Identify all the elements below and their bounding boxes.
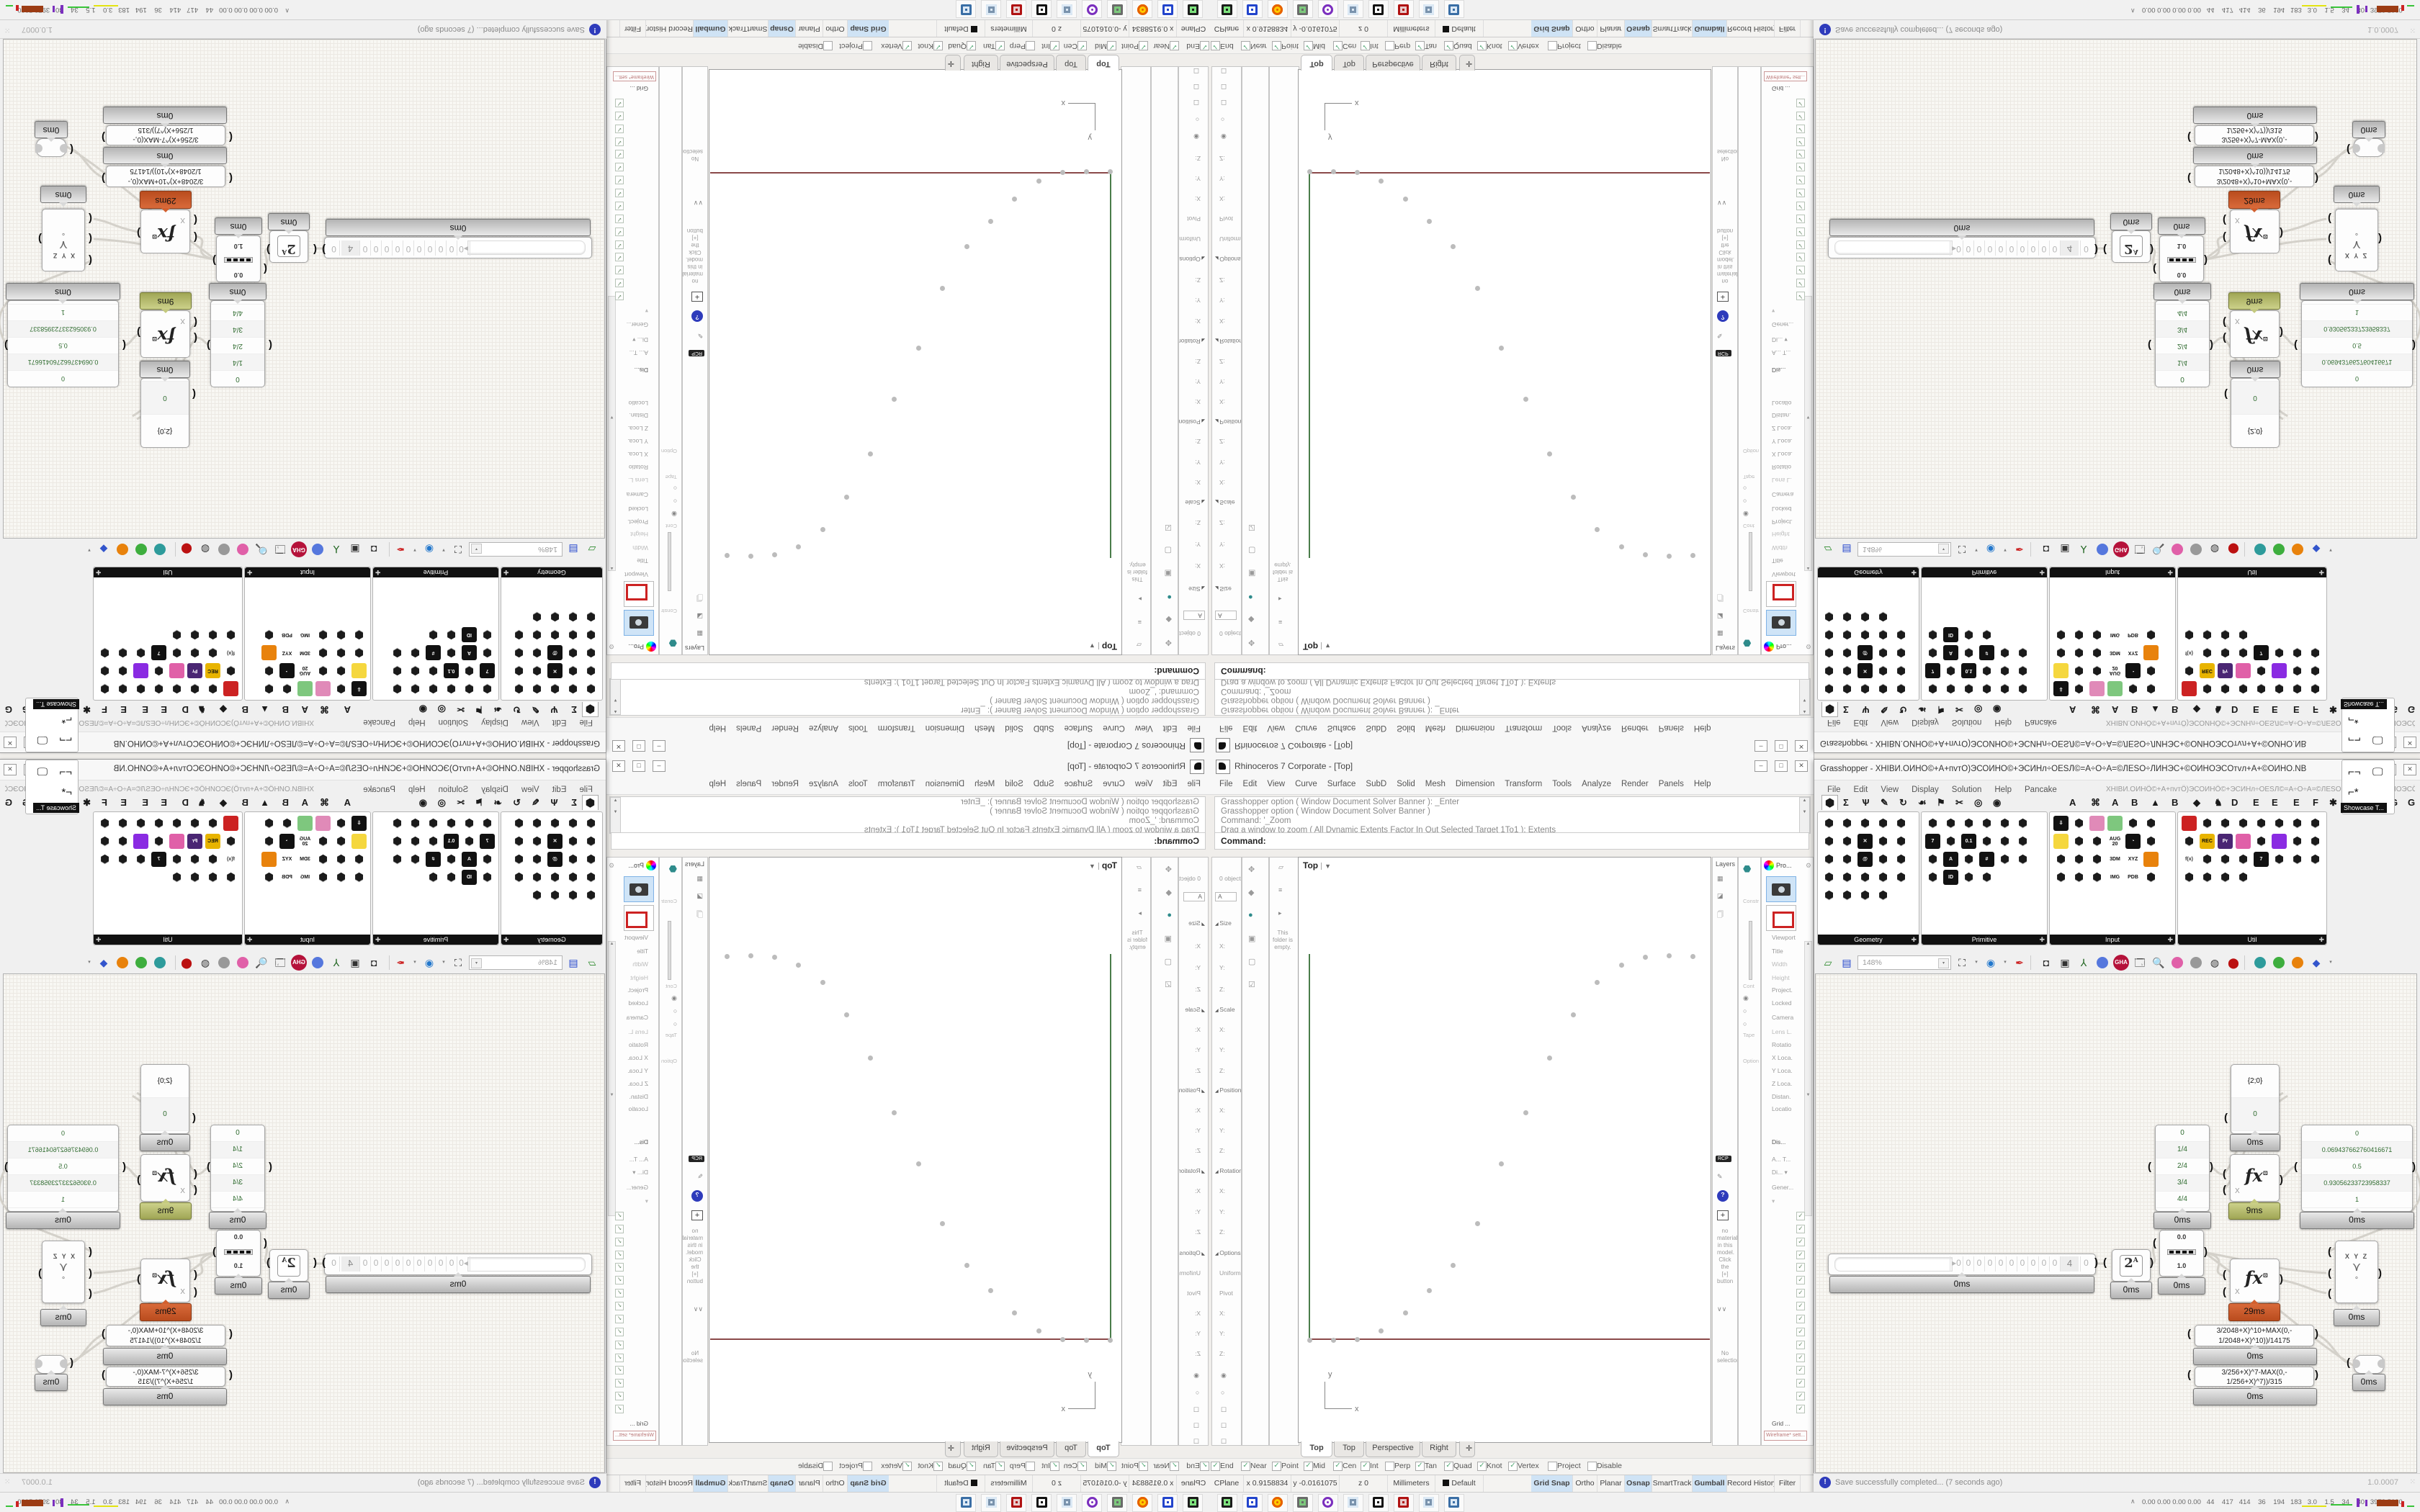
component-icon[interactable]: ⬢: [222, 868, 240, 886]
display-option-item[interactable]: Tape: [660, 474, 681, 480]
category-tab[interactable]: E: [2272, 797, 2278, 808]
command-history[interactable]: Grasshopper option ( Window Document Sol…: [609, 796, 1206, 834]
component-icon[interactable]: ⬢: [2270, 644, 2288, 662]
category-tab[interactable]: F: [102, 797, 107, 808]
osnap-label[interactable]: Disable: [1597, 1462, 1622, 1470]
status-cell[interactable]: SmartTrack: [727, 20, 768, 37]
osnap-checkbox-vertex[interactable]: ✓: [1508, 1462, 1518, 1471]
grasshopper-titlebar[interactable]: Grasshopper - ХНІВИ.ОИНӦ©+А+пvтӦ)ЭСОИНӦ©…: [0, 732, 606, 752]
minimize-button[interactable]: –: [1754, 740, 1767, 752]
display-checkbox[interactable]: ✓: [1796, 1251, 1805, 1259]
component-icon[interactable]: ⬢: [1978, 868, 1996, 886]
grasshopper-menu-item[interactable]: File: [573, 718, 599, 729]
toolbar-icon[interactable]: ✥: [1152, 638, 1178, 647]
save-icon[interactable]: ▤: [565, 955, 581, 971]
close-button[interactable]: ✕: [2403, 737, 2416, 748]
toolbar-ball-icon[interactable]: [154, 957, 166, 968]
component-icon[interactable]: ⬢: [2234, 868, 2252, 886]
power-of-two-node[interactable]: 2A: [2112, 230, 2151, 263]
display-checkbox[interactable]: ✓: [1796, 1315, 1805, 1323]
component-icon[interactable]: 7: [2254, 645, 2269, 660]
taskbar-app-icon-6[interactable]: [1031, 0, 1052, 18]
curve-point[interactable]: [1690, 954, 1695, 959]
component-icon[interactable]: ⬢: [1820, 850, 1838, 868]
curve-point[interactable]: [1619, 963, 1624, 968]
i-icon[interactable]: ◍: [197, 955, 213, 971]
osnap-checkbox-project[interactable]: [1548, 1462, 1557, 1471]
component-icon[interactable]: ⬢: [582, 832, 600, 850]
component-icon[interactable]: ⬢: [1838, 662, 1856, 680]
component-icon[interactable]: IMG: [297, 870, 313, 885]
expression-text-panel[interactable]: 3/2048+X)^10+MAX(0,- 1/2048+X)^10))/1417…: [106, 1325, 225, 1346]
taskbar-app-icon-7[interactable]: [1394, 1494, 1414, 1512]
rhino-menu-item[interactable]: SubD: [1361, 724, 1391, 736]
gem-icon[interactable]: ◆: [2308, 541, 2324, 557]
toolbar-ball-icon[interactable]: [237, 544, 248, 555]
component-icon[interactable]: ◔: [2125, 663, 2141, 678]
category-tab[interactable]: ♞: [197, 703, 206, 715]
rhino-menu-item[interactable]: Analyze: [1577, 776, 1616, 788]
curve-point[interactable]: [1084, 1338, 1089, 1343]
node-port[interactable]: ): [212, 1248, 216, 1256]
gha-icon[interactable]: GHA: [2113, 541, 2129, 557]
goggles-wand-icon[interactable]: ⌐*: [2348, 714, 2359, 726]
component-icon[interactable]: ⬢: [2306, 850, 2324, 868]
dd-icon[interactable]: ▾: [2002, 541, 2009, 557]
display-checkbox[interactable]: ✓: [615, 1354, 624, 1362]
component-icon[interactable]: ⬢: [2198, 680, 2216, 698]
osnap-checkbox-mid[interactable]: ✓: [1304, 41, 1313, 50]
osnap-label[interactable]: Disable: [1597, 42, 1622, 50]
component-icon[interactable]: [133, 834, 148, 849]
node-port[interactable]: (: [194, 1171, 197, 1178]
component-icon[interactable]: ⬢: [546, 626, 564, 644]
component-icon[interactable]: [297, 816, 313, 831]
rhino-menu-item[interactable]: File: [1214, 724, 1238, 736]
osnap-checkbox-vertex[interactable]: ✓: [1508, 41, 1518, 50]
display-option-item[interactable]: ○: [660, 1007, 681, 1014]
tray-chevron-icon[interactable]: ∧: [284, 1498, 290, 1506]
category-tab[interactable]: D: [2231, 797, 2238, 808]
maximize-button[interactable]: □: [1775, 740, 1788, 752]
toolbar-icon[interactable]: ✥: [1242, 638, 1268, 647]
grasshopper-menu-item[interactable]: File: [1821, 783, 1847, 794]
node-port[interactable]: ): [102, 133, 105, 140]
component-icon[interactable]: ⬢: [2070, 662, 2088, 680]
node-port[interactable]: ): [2204, 256, 2208, 264]
curve-point[interactable]: [940, 286, 945, 291]
osnap-checkbox-cen[interactable]: ✓: [1333, 41, 1343, 50]
category-tab[interactable]: ⌘: [2091, 703, 2100, 715]
status-cell[interactable]: Osnap: [768, 20, 795, 37]
component-icon[interactable]: ⬢: [2180, 662, 2198, 680]
category-tab[interactable]: ⬢: [582, 702, 599, 717]
component-icon[interactable]: ⬢: [1892, 644, 1910, 662]
component-icon[interactable]: ⬢: [460, 680, 478, 698]
properties-tab-label[interactable]: Pro...: [628, 862, 644, 869]
rhino-menu-item[interactable]: Panels: [731, 776, 766, 788]
component-icon[interactable]: #: [1979, 645, 1994, 660]
expression-text-panel[interactable]: 3/256+X)^7-MAX(0,- 1/256+X)^7))/315: [2195, 125, 2314, 145]
component-icon[interactable]: ⬢: [442, 644, 460, 662]
maximize-button[interactable]: □: [632, 740, 645, 752]
viewport-properties-button[interactable]: [624, 905, 654, 931]
component-icon[interactable]: ⬢: [406, 832, 424, 850]
component-icon[interactable]: ⬢: [478, 850, 496, 868]
component-icon[interactable]: ⬢: [2180, 832, 2198, 850]
category-tab[interactable]: ⚑: [475, 703, 483, 715]
component-icon[interactable]: ⬢: [546, 814, 564, 832]
rhino-menu-item[interactable]: Edit: [1158, 776, 1183, 788]
component-icon[interactable]: #: [1979, 852, 1994, 867]
layers-materials-column[interactable]: Layers▦◪🗍RCP✎?+no material in this model…: [682, 66, 708, 655]
grasshopper-menu-item[interactable]: Display: [475, 718, 515, 729]
curve-point[interactable]: [1036, 1328, 1041, 1333]
node-port[interactable]: (: [89, 215, 92, 222]
toolbar-ball-icon[interactable]: [135, 544, 147, 555]
status-cell[interactable]: SmartTrack: [1652, 20, 1693, 37]
node-port[interactable]: (: [89, 235, 92, 242]
group-label[interactable]: Geometry✚: [1818, 567, 1919, 577]
rhino-menu-item[interactable]: Panels: [1654, 724, 1689, 736]
component-icon[interactable]: @: [547, 645, 563, 660]
toolbar-icon[interactable]: ▣: [1242, 569, 1268, 578]
node-port[interactable]: ): [2412, 341, 2416, 348]
osnap-checkbox-disable[interactable]: [1587, 41, 1597, 50]
component-icon[interactable]: ⬢: [478, 868, 496, 886]
component-icon[interactable]: [223, 681, 238, 696]
taskbar-app-icon-2[interactable]: [1132, 0, 1152, 18]
viewport-tab[interactable]: Top: [1301, 1441, 1332, 1457]
power-of-two-node[interactable]: 2A: [269, 230, 308, 263]
component-icon[interactable]: ⬢: [442, 868, 460, 886]
component-icon[interactable]: ⬢: [96, 850, 114, 868]
digit-cell-active[interactable]: 4: [341, 240, 360, 256]
display-checkbox[interactable]: ✓: [1796, 112, 1805, 120]
viewport-properties-button[interactable]: [1766, 905, 1796, 931]
component-icon[interactable]: ⬢: [2288, 832, 2306, 850]
node-port[interactable]: ): [2150, 1259, 2154, 1266]
display-checkbox[interactable]: ✓: [1796, 138, 1805, 146]
component-icon[interactable]: ⬢: [114, 832, 132, 850]
component-icon[interactable]: [169, 834, 184, 849]
component-icon[interactable]: ⬢: [168, 680, 186, 698]
osnap-checkbox-near[interactable]: ✓: [1241, 1462, 1250, 1471]
osnap-label[interactable]: Near: [1153, 42, 1170, 50]
expression-node-29ms[interactable]: X fx⊡: [140, 1259, 190, 1302]
component-icon[interactable]: ⬢: [1838, 680, 1856, 698]
taskbar-app-icon-5[interactable]: [1343, 1494, 1363, 1512]
node-port[interactable]: ): [2378, 1270, 2382, 1277]
curve-point[interactable]: [1331, 169, 1336, 174]
component-icon[interactable]: ⬢: [442, 850, 460, 868]
category-tab[interactable]: D: [182, 704, 189, 715]
group-label[interactable]: Primitive✚: [1922, 935, 2047, 945]
properties-panel[interactable]: Pro... ⚙ ViewportTitleWidthHeightProject…: [1761, 857, 1814, 1446]
node-port[interactable]: ): [38, 235, 42, 242]
component-icon[interactable]: ⬢: [1892, 626, 1910, 644]
curve-point[interactable]: [844, 495, 849, 500]
osnap-checkbox-point[interactable]: ✓: [1139, 41, 1148, 50]
osnap-label[interactable]: Cen: [1343, 1462, 1356, 1470]
status-cell[interactable]: z 0: [1340, 1475, 1388, 1492]
grasshopper-menu-item[interactable]: View: [1874, 783, 1905, 794]
curve-point[interactable]: [844, 1012, 849, 1017]
taskbar-app-icon-9[interactable]: [1444, 1494, 1464, 1512]
component-icon[interactable]: [2272, 834, 2287, 849]
display-checkbox[interactable]: ✓: [1796, 163, 1805, 171]
component-icon[interactable]: 0.1: [1961, 834, 1976, 849]
viewport-label[interactable]: Top▼: [1089, 642, 1117, 652]
digit-cell[interactable]: 0: [436, 1256, 447, 1272]
component-icon[interactable]: [351, 834, 367, 849]
osnap-checkbox-mid[interactable]: ✓: [1107, 1462, 1116, 1471]
component-icon[interactable]: ⬢: [2288, 850, 2306, 868]
toolbar-icon[interactable]: ☑: [1152, 980, 1178, 989]
taskbar-app-icon-0[interactable]: [1217, 0, 1237, 18]
digit-cell[interactable]: 0: [447, 240, 457, 256]
osnap-label[interactable]: Knot: [918, 42, 933, 50]
component-icon[interactable]: 7: [151, 645, 166, 660]
digit-cell[interactable]: 0: [371, 240, 382, 256]
curve-point[interactable]: [772, 955, 777, 960]
viewport-dropdown-icon[interactable]: ▼: [1321, 642, 1331, 649]
component-icon[interactable]: ⬢: [332, 832, 350, 850]
osnap-label[interactable]: Vertex: [881, 1462, 902, 1470]
component-icon[interactable]: ⬢: [332, 868, 350, 886]
category-tab[interactable]: E: [142, 704, 148, 715]
status-cell[interactable]: y -0.0161075: [1080, 1475, 1129, 1492]
goggles-wand-icon[interactable]: ⌐*: [2348, 786, 2359, 798]
category-tab[interactable]: B: [2172, 704, 2178, 715]
status-cell[interactable]: y -0.0161075: [1291, 1475, 1340, 1492]
digit-cell[interactable]: ▸0: [457, 240, 470, 256]
component-icon[interactable]: ⬢: [1820, 608, 1838, 626]
command-prompt[interactable]: Command:: [1214, 832, 1809, 850]
category-tab[interactable]: ✂: [457, 703, 465, 715]
display-checkbox[interactable]: ✓: [615, 163, 624, 171]
component-icon[interactable]: 7: [2254, 852, 2269, 867]
rhino-menu-item[interactable]: Dimension: [920, 724, 969, 736]
component-icon[interactable]: ⬢: [1924, 814, 1942, 832]
component-icon[interactable]: ⬢: [1874, 680, 1892, 698]
node-port[interactable]: ): [2315, 133, 2318, 140]
display-option-item[interactable]: Constr: [660, 608, 681, 614]
command-scrollbar[interactable]: ▲▼: [610, 679, 621, 715]
display-options-column[interactable]: ⬣ConstrCont◉○○TapeOption: [659, 66, 682, 655]
dd-icon[interactable]: ▾: [86, 541, 93, 557]
close-button[interactable]: ✕: [1795, 740, 1808, 752]
node-port[interactable]: ): [102, 1331, 105, 1338]
component-icon[interactable]: ⬢: [2142, 662, 2160, 680]
component-icon[interactable]: 3DM: [2107, 645, 2123, 660]
values-panel-node[interactable]: 00.0694376627604166710.50.93056233723958…: [2301, 300, 2413, 387]
category-tab[interactable]: ✎: [532, 797, 539, 809]
status-cell[interactable]: Millimeters: [985, 20, 1032, 37]
component-icon[interactable]: ⬢: [114, 644, 132, 662]
dd-icon[interactable]: ▾: [86, 955, 93, 971]
component-icon[interactable]: ⬢: [1856, 868, 1874, 886]
category-tab[interactable]: ☙: [493, 703, 502, 715]
node-port[interactable]: (: [264, 265, 267, 272]
display-option-item[interactable]: Cont: [660, 983, 681, 989]
power-of-two-node[interactable]: 2A: [2112, 1249, 2151, 1282]
resize-grip[interactable]: ⁙: [2410, 1478, 2416, 1486]
node-port[interactable]: (: [2103, 246, 2107, 253]
status-cell[interactable]: Record History: [645, 20, 693, 37]
display-checkbox[interactable]: ✓: [1796, 125, 1805, 133]
close-button[interactable]: ✕: [4, 764, 17, 775]
display-checkbox[interactable]: ✓: [615, 1302, 624, 1310]
osnap-label[interactable]: Disable: [798, 42, 823, 50]
display-checkbox[interactable]: ✓: [615, 112, 624, 120]
node-port[interactable]: ): [322, 246, 326, 253]
toolbar-ball-icon[interactable]: [312, 957, 323, 968]
component-icon[interactable]: ⬢: [2180, 626, 2198, 644]
node-port[interactable]: ): [2210, 1164, 2213, 1171]
node-port[interactable]: (: [194, 1289, 197, 1296]
rhino-menu-item[interactable]: View: [1130, 776, 1158, 788]
digit-cell[interactable]: 0: [2080, 240, 2092, 256]
display-checkbox[interactable]: ✓: [615, 1263, 624, 1272]
boxedit-panel[interactable]: 0 objectsASizeX:Y:Z:ScaleX:Y:Z:PositionX…: [1178, 857, 1209, 1446]
rhino-menu-item[interactable]: Surface: [1059, 776, 1098, 788]
component-icon[interactable]: ID: [1943, 627, 1958, 642]
presentation-board-icon[interactable]: 🖵: [2372, 766, 2383, 778]
display-checkbox[interactable]: ✓: [1796, 202, 1805, 210]
category-tab[interactable]: G: [5, 704, 12, 715]
group-label[interactable]: Primitive✚: [373, 567, 498, 577]
remap-gradient-node[interactable]: 0.0 1.0: [216, 235, 261, 282]
dd-icon[interactable]: ▾: [440, 541, 447, 557]
category-tab[interactable]: ✂: [457, 797, 465, 809]
status-cell[interactable]: Planar: [1597, 1475, 1625, 1492]
category-tab[interactable]: ↻: [513, 797, 521, 809]
category-tab[interactable]: ✂: [1955, 703, 1963, 715]
zoom-level-combo[interactable]: 148%▾: [1857, 542, 1951, 557]
rhino-menu-item[interactable]: SubD: [1361, 776, 1391, 788]
display-checkbox[interactable]: ✓: [615, 1225, 624, 1233]
node-port[interactable]: (: [2223, 216, 2226, 223]
curve-point[interactable]: [1403, 1310, 1408, 1315]
taskbar-app-icon-7[interactable]: [1006, 0, 1026, 18]
presentation-board-icon[interactable]: 🖵: [37, 766, 48, 778]
digit-cell-active[interactable]: 4: [341, 1256, 360, 1272]
tray-chevron-icon[interactable]: ∧: [2130, 6, 2136, 14]
taskbar-app-icon-4[interactable]: [1082, 1494, 1102, 1512]
node-port[interactable]: (: [194, 1272, 197, 1279]
properties-scrollbar[interactable]: ▲▼: [1804, 296, 1812, 571]
display-checkbox[interactable]: ✓: [1796, 1366, 1805, 1374]
category-tab[interactable]: ✱: [83, 797, 91, 809]
folder-panel[interactable]: ▱≡▸This folder is empty.: [1269, 857, 1299, 1446]
component-icon[interactable]: A: [462, 645, 477, 660]
component-icon[interactable]: ⬢: [2306, 662, 2324, 680]
osnap-checkbox-mid[interactable]: ✓: [1107, 41, 1116, 50]
osnap-checkbox-point[interactable]: ✓: [1272, 1462, 1281, 1471]
grasshopper-menu-item[interactable]: Display: [475, 783, 515, 794]
status-cell[interactable]: Ortho: [823, 20, 847, 37]
taskbar-app-icon-8[interactable]: [1419, 0, 1439, 18]
category-tab[interactable]: ◉: [1993, 797, 2001, 809]
display-checkbox[interactable]: ✓: [615, 1238, 624, 1246]
component-icon[interactable]: ⬢: [1856, 886, 1874, 904]
osnap-label[interactable]: Tan: [983, 1462, 995, 1470]
component-icon[interactable]: ⬢: [388, 680, 406, 698]
component-icon[interactable]: ⬢: [528, 814, 546, 832]
component-icon[interactable]: ⬢: [260, 662, 278, 680]
properties-panel[interactable]: Pro... ⚙ ViewportTitleWidthHeightProject…: [606, 66, 659, 655]
component-icon[interactable]: ⬢: [1874, 832, 1892, 850]
goggles-icon[interactable]: ⌐¬: [59, 766, 72, 778]
save-icon[interactable]: ▤: [565, 541, 581, 557]
osnap-checkbox-knot[interactable]: ✓: [933, 41, 943, 50]
group-label[interactable]: Primitive✚: [373, 935, 498, 945]
category-tab[interactable]: A: [2069, 704, 2076, 715]
grasshopper-menu-item[interactable]: File: [1821, 718, 1847, 729]
eye-icon[interactable]: ◉: [421, 541, 437, 557]
category-tab[interactable]: ✱: [2329, 797, 2337, 809]
component-icon[interactable]: ⬢: [314, 868, 332, 886]
node-port[interactable]: (: [2187, 133, 2191, 140]
digit-cell[interactable]: ▸0: [1950, 1256, 1963, 1272]
expression-text-panel[interactable]: 3/2048+X)^10+MAX(0,- 1/2048+X)^10))/1417…: [2195, 1325, 2314, 1346]
osnap-label[interactable]: Cen: [1064, 42, 1077, 50]
status-cell[interactable]: Planar: [795, 1475, 823, 1492]
viewport-tab[interactable]: Perspective: [1366, 1441, 1420, 1457]
component-icon[interactable]: ⬢: [260, 814, 278, 832]
toolbar-icon[interactable]: ▢: [1152, 546, 1178, 555]
command-prompt[interactable]: Command:: [1214, 662, 1809, 680]
component-icon[interactable]: ⬢: [186, 850, 204, 868]
component-icon[interactable]: ⬢: [564, 608, 582, 626]
i-icon[interactable]: 🗔: [272, 541, 288, 557]
node-port[interactable]: (: [264, 1240, 267, 1247]
toolbar-ball-icon[interactable]: [154, 544, 166, 555]
group-label[interactable]: Geometry✚: [501, 567, 602, 577]
component-icon[interactable]: 7: [1925, 834, 1940, 849]
display-checkbox[interactable]: ✓: [615, 1212, 624, 1220]
node-port[interactable]: ): [2280, 328, 2283, 336]
component-icon[interactable]: XYZ: [279, 645, 295, 660]
curve-point[interactable]: [1547, 1056, 1552, 1061]
node-port[interactable]: (: [2328, 1248, 2331, 1256]
viewport-tab[interactable]: Top: [1301, 55, 1332, 71]
dd-icon[interactable]: ▾: [2327, 955, 2334, 971]
component-icon[interactable]: ◔: [279, 663, 295, 678]
grasshopper-menu-item[interactable]: Pancake: [2018, 718, 2063, 729]
digit-cell[interactable]: 0: [371, 1256, 382, 1272]
component-icon[interactable]: ⬢: [1924, 680, 1942, 698]
osnap-checkbox-perp[interactable]: [1026, 1462, 1035, 1471]
minimize-button[interactable]: –: [653, 740, 665, 752]
taskbar-app-icon-5[interactable]: [1057, 1494, 1077, 1512]
component-icon[interactable]: ⬢: [186, 644, 204, 662]
grasshopper-menu-item[interactable]: Solution: [432, 718, 475, 729]
display-option-item[interactable]: ○: [1739, 1020, 1760, 1027]
digit-cell[interactable]: 0: [1995, 1256, 2006, 1272]
component-icon[interactable]: #: [426, 852, 441, 867]
category-tab[interactable]: ⬢: [1821, 702, 1838, 717]
component-icon[interactable]: ⬢: [1996, 850, 2014, 868]
display-checkbox[interactable]: ✓: [615, 176, 624, 184]
i-icon[interactable]: 🗔: [2132, 541, 2148, 557]
display-checkbox[interactable]: ✓: [1796, 292, 1805, 300]
toolbar-icon[interactable]: ▢: [1242, 957, 1268, 966]
display-checkbox[interactable]: ✓: [615, 279, 624, 287]
category-tab[interactable]: E: [161, 797, 167, 808]
category-tab[interactable]: Ѱ: [550, 704, 558, 715]
